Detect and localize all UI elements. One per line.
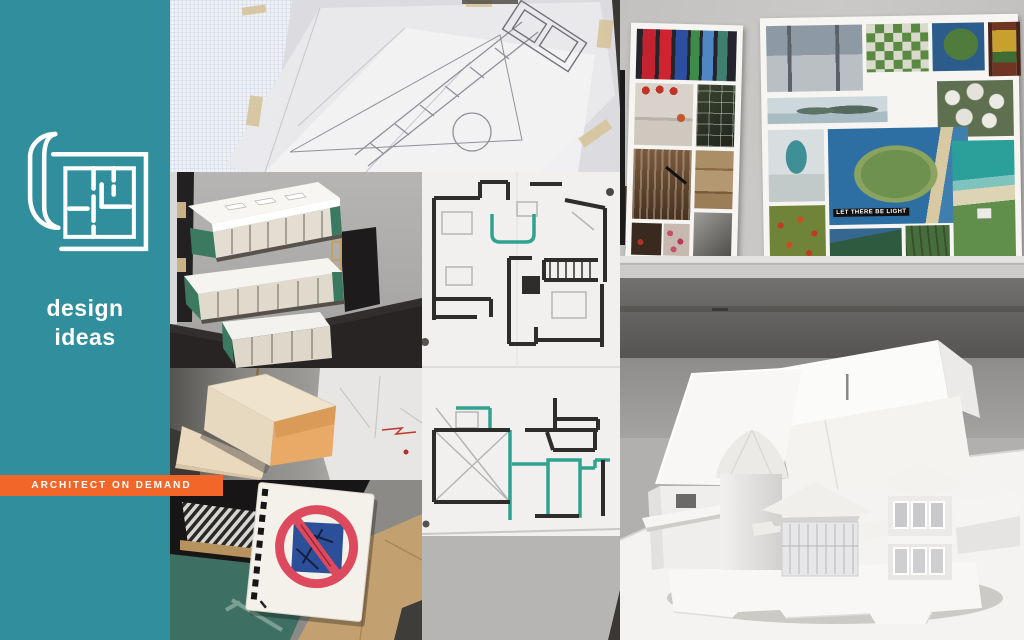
- beach-house: [977, 208, 991, 218]
- photo-stacked-models: [170, 172, 422, 368]
- moodboard-tile-ocean-terrace: [766, 24, 863, 92]
- photo-marker-floor-plans: [422, 172, 620, 640]
- moodboard-tile-painting: [988, 22, 1021, 77]
- mood-board-coastal: LET THERE BE LIGHT: [760, 14, 1022, 268]
- moodboard-tile-bay-panorama: [767, 96, 887, 124]
- moodboard-tile-kitchen: [694, 150, 734, 209]
- moodboard-tile-dark-interior: [631, 223, 662, 256]
- mood-board-interiors: [625, 23, 743, 262]
- photo-mood-boards: LET THERE BE LIGHT: [620, 0, 1024, 278]
- photo-sketch-tracing-paper: [170, 0, 620, 172]
- brand-title-line1: design: [0, 294, 170, 323]
- brand-sidebar: design ideas: [0, 0, 170, 640]
- moodboard-tile-beach-house: [952, 140, 1016, 261]
- spiral-notebook: [245, 482, 378, 627]
- moodboard-tile-flower-field: [769, 205, 826, 262]
- moodboard-tile-window-plants: [696, 84, 736, 147]
- photo-white-study-model: [620, 278, 1024, 640]
- moodboard-tile-checker-lawn: [866, 23, 929, 72]
- moodboard-caption: LET THERE BE LIGHT: [833, 208, 909, 217]
- blueprint-roll-icon: [17, 122, 153, 262]
- moodboard-tile-beach-umbrella: [768, 129, 825, 202]
- moodboard-tile-flowers: [663, 224, 690, 257]
- brand-title-line2: ideas: [0, 323, 170, 352]
- brand-title: design ideas: [0, 294, 170, 353]
- shelf-ledge: [620, 256, 1024, 278]
- moodboard-tile-island-estate: [932, 22, 985, 71]
- moodboard-tile-colored-facade: [636, 29, 737, 82]
- banner-label: ARCHITECT ON DEMAND: [31, 480, 191, 491]
- moodboard-tile-bookshelf: [632, 149, 692, 220]
- moodboard-tile-shelf-red-pots: [634, 83, 694, 146]
- lamp-arm: [665, 166, 687, 185]
- moodboard-tile-bw-photo: [693, 212, 732, 257]
- moodboard-tile-aerial-island: LET THERE BE LIGHT: [828, 127, 970, 225]
- photo-notebook-no-sign: [170, 480, 422, 640]
- design-ideas-collage: design ideas: [0, 0, 1024, 640]
- architect-on-demand-banner: ARCHITECT ON DEMAND: [0, 475, 223, 496]
- photo-cardboard-model: [170, 368, 422, 480]
